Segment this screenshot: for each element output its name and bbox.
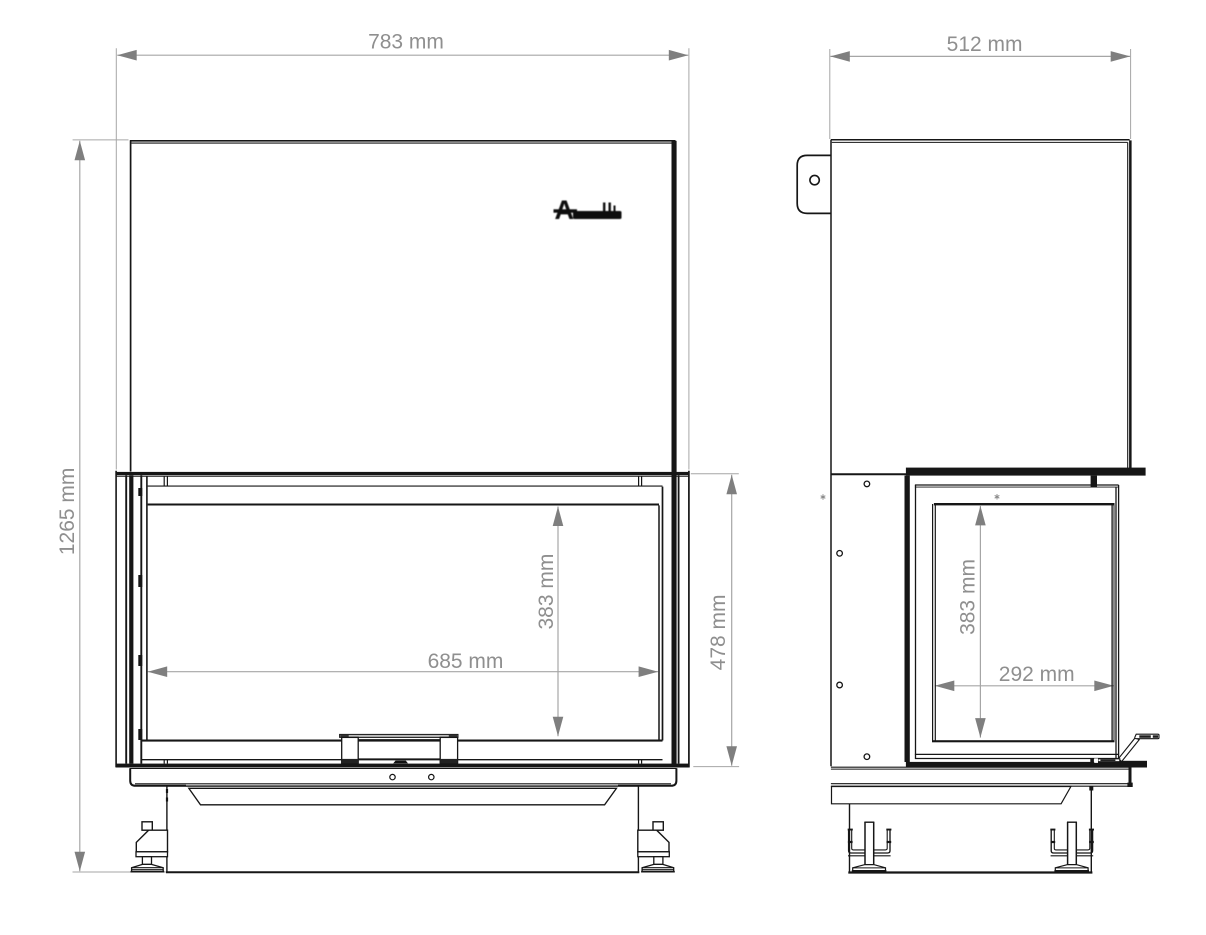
svg-text:478 mm: 478 mm [707, 594, 730, 670]
svg-text:512 mm: 512 mm [947, 33, 1023, 56]
svg-text:383 mm: 383 mm [956, 559, 979, 635]
svg-text:783 mm: 783 mm [368, 31, 444, 54]
svg-text:383 mm: 383 mm [535, 554, 558, 630]
svg-text:685 mm: 685 mm [428, 650, 504, 673]
svg-text:292 mm: 292 mm [999, 663, 1075, 686]
svg-text:1265 mm: 1265 mm [56, 468, 79, 556]
